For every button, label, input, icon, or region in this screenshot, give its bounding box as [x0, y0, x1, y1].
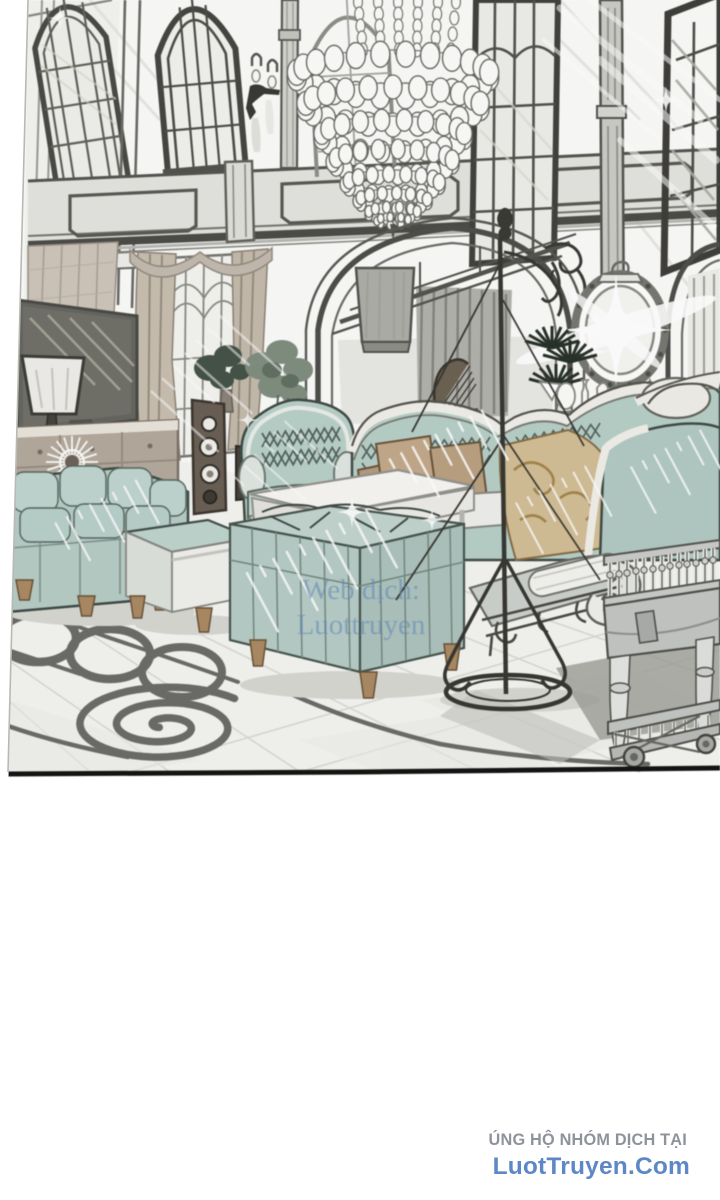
svg-text:Web dịch:: Web dịch:	[302, 574, 420, 606]
svg-text:Luottruyen: Luottruyen	[297, 609, 426, 641]
